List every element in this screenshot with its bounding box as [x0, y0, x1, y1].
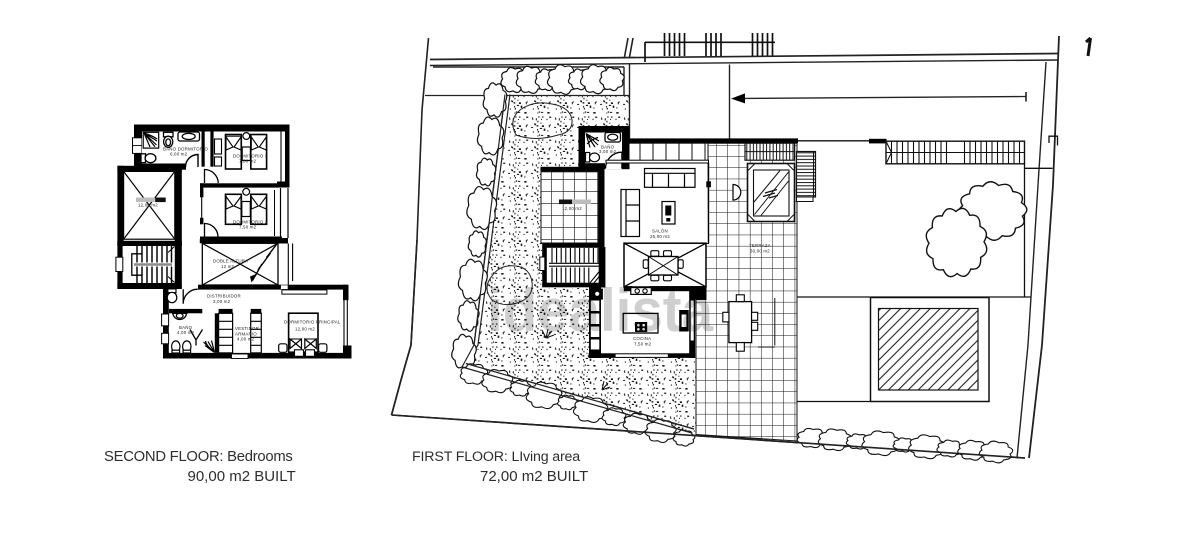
svg-text:VESTIDOR: VESTIDOR	[235, 326, 259, 331]
svg-text:DORMITORIO PRINCIPAL: DORMITORIO PRINCIPAL	[284, 320, 341, 325]
svg-text:3,00 m2: 3,00 m2	[599, 149, 617, 154]
svg-text:DOBLE ALTURA: DOBLE ALTURA	[213, 259, 248, 264]
svg-text:ARMARIO: ARMARIO	[235, 331, 257, 336]
svg-text:idealista: idealista	[487, 277, 714, 344]
svg-text:TERRAZA: TERRAZA	[749, 243, 771, 248]
svg-text:3,00 m2: 3,00 m2	[213, 299, 231, 304]
svg-text:7,50 m2: 7,50 m2	[239, 159, 257, 164]
svg-text:SALÓN: SALÓN	[652, 229, 668, 234]
svg-text:DISTRIBUIDOR: DISTRIBUIDOR	[207, 294, 241, 299]
svg-text:12,00 m2: 12,00 m2	[138, 203, 158, 208]
svg-text:25,00 m2: 25,00 m2	[650, 234, 670, 239]
svg-text:4,00 m2: 4,00 m2	[237, 337, 255, 342]
svg-text:4,00 m2: 4,00 m2	[177, 330, 195, 335]
svg-text:12 m2: 12 m2	[221, 264, 235, 269]
svg-text:72,00 m2 BUILT: 72,00 m2 BUILT	[480, 468, 588, 485]
svg-text:6,00 m2: 6,00 m2	[170, 152, 188, 157]
svg-text:FIRST FLOOR: LIving area: FIRST FLOOR: LIving area	[412, 449, 580, 465]
svg-text:30,00 m2: 30,00 m2	[750, 248, 770, 253]
svg-text:12,00 m2: 12,00 m2	[562, 206, 582, 211]
svg-text:7,50 m2: 7,50 m2	[239, 225, 257, 230]
svg-text:90,00 m2 BUILT: 90,00 m2 BUILT	[188, 468, 296, 485]
svg-text:12,00 m2: 12,00 m2	[295, 327, 315, 332]
svg-text:SECOND FLOOR: Bedrooms: SECOND FLOOR: Bedrooms	[104, 449, 293, 465]
